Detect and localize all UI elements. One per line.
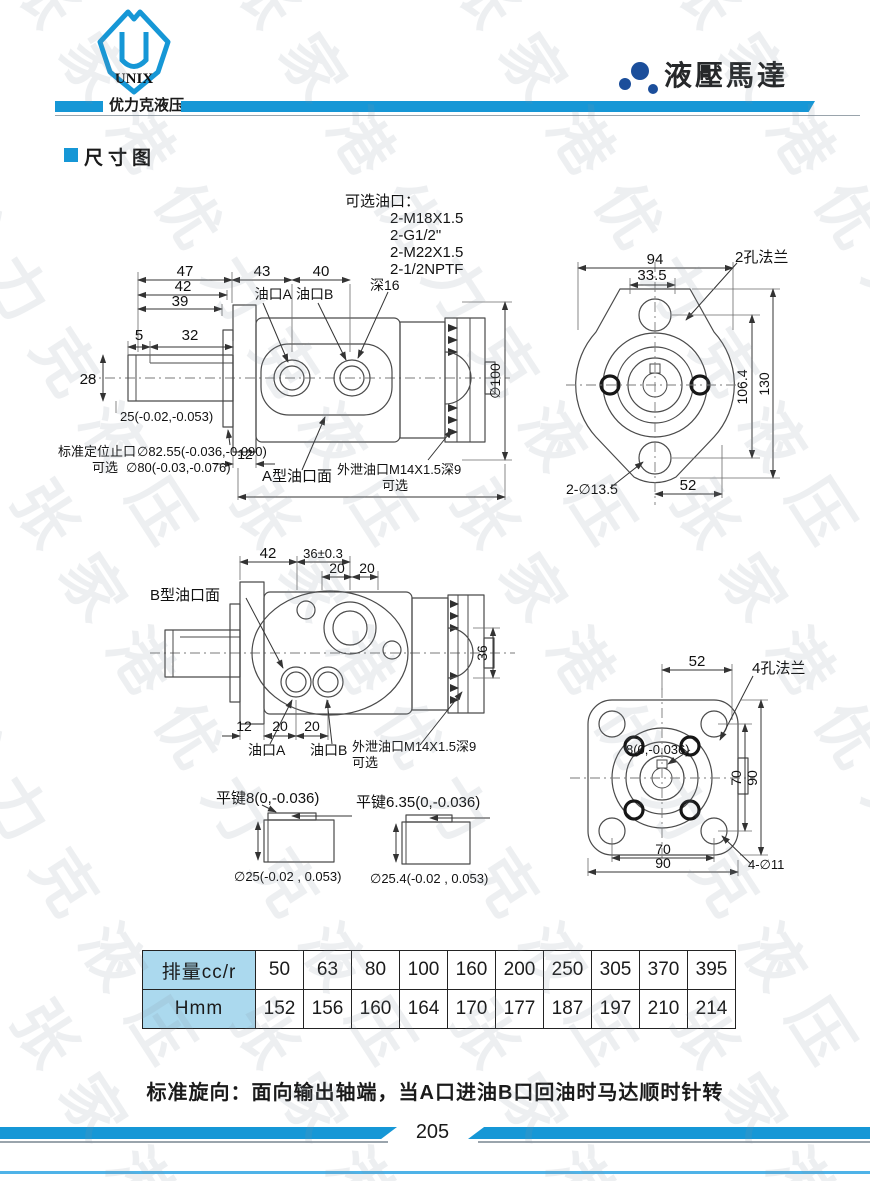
table-cell: 100 — [400, 951, 448, 990]
flange4-labels: 52 4孔法兰 8(0,-0.036) 70 90 70 90 4-∅11 — [626, 653, 805, 872]
b-face-label: B型油口面 — [150, 587, 220, 604]
table-cell: 80 — [352, 951, 400, 990]
dim-130: 130 — [756, 372, 772, 396]
drawing-flange-4hole: 52 4孔法兰 8(0,-0.036) 70 90 70 90 4-∅11 — [570, 653, 805, 876]
footer-rule-left — [0, 1141, 388, 1143]
dim-32: 32 — [182, 327, 199, 344]
port-b-label: 油口B — [310, 742, 347, 758]
rotation-note: 标准旋向：面向输出轴端，当A口进油B口回油时马达顺时针转 — [0, 1076, 870, 1105]
dim-20: 20 — [272, 718, 288, 734]
bottom-edge-line — [0, 1171, 870, 1174]
table-cell: 160 — [352, 990, 400, 1029]
table-cell: 156 — [304, 990, 352, 1029]
table-cell: 170 — [448, 990, 496, 1029]
drain-optional-label: 可选 — [352, 755, 378, 770]
port-depth-label: 深16 — [370, 277, 400, 293]
dim-2-holes: 2-∅13.5 — [566, 481, 618, 497]
dim-36-tol: 36±0.3 — [303, 546, 343, 561]
dim-33-5: 33.5 — [637, 267, 666, 284]
footer-bar-left — [0, 1127, 397, 1139]
drawing-side-view-a: 47 42 39 43 40 5 32 28 油口A 油口B 25(-0.02,… — [58, 193, 512, 500]
dim-106-4: 106.4 — [734, 369, 750, 404]
footer-bar-right — [468, 1127, 870, 1139]
flange2-title: 2孔法兰 — [735, 249, 788, 266]
table-cell: 187 — [544, 990, 592, 1029]
shaft-dia-label: 25(-0.02,-0.053) — [120, 409, 213, 424]
dim-70: 70 — [728, 770, 744, 786]
table-cell: 250 — [544, 951, 592, 990]
dim-12: 12 — [237, 446, 253, 462]
pilot-optional-label: 可选 — [92, 460, 118, 475]
table-row-displacement: 排量cc/r 50 63 80 100 160 200 250 305 370 … — [143, 951, 736, 990]
key635-shaft-dia: ∅25.4(-0.02 , 0.053) — [370, 871, 488, 886]
table-cell: 152 — [256, 990, 304, 1029]
dim-90: 90 — [655, 855, 671, 871]
table-row-height: Hmm 152 156 160 164 170 177 187 197 210 … — [143, 990, 736, 1029]
dim-52: 52 — [680, 477, 697, 494]
table-cell: 160 — [448, 951, 496, 990]
key635-label: 平键6.35(0,-0.036) — [356, 794, 480, 811]
table-cell: 164 — [400, 990, 448, 1029]
dim-42: 42 — [260, 545, 277, 562]
table-cell: 395 — [688, 951, 736, 990]
drawing-side-view-b: 42 36±0.3 20 20 B型油口面 12 20 20 油口A 油口B 外… — [150, 545, 515, 770]
dim-36: 36 — [474, 645, 490, 661]
optional-ports-title: 可选油口： — [345, 193, 420, 210]
page-number: 205 — [397, 1121, 468, 1144]
port-b-label: 油口B — [296, 286, 333, 302]
pilot-optional-dia: ∅80(-0.03,-0.076) — [126, 460, 231, 475]
dim-39: 39 — [172, 293, 189, 310]
flange2-labels: 94 33.5 2孔法兰 106.4 130 2-∅13.5 52 — [566, 249, 788, 497]
drain-port-label: 外泄油口M14X1.5深9 — [337, 462, 461, 477]
pilot-label: 标准定位止口 — [58, 444, 136, 459]
footer-rule-right — [478, 1141, 870, 1143]
port-a-label: 油口A — [248, 742, 286, 758]
table-cell: 177 — [496, 990, 544, 1029]
dim-20: 20 — [329, 560, 345, 576]
row-header-height: Hmm — [143, 990, 256, 1029]
optional-port-option: 2-M18X1.5 — [390, 210, 463, 227]
dim-dia100: ∅100 — [487, 363, 503, 399]
dim-90: 90 — [744, 770, 760, 786]
dim-4-holes: 4-∅11 — [748, 857, 784, 872]
dim-20: 20 — [359, 560, 375, 576]
dim-43: 43 — [254, 263, 271, 280]
dim-28: 28 — [80, 371, 97, 388]
drain-optional-label: 可选 — [382, 478, 408, 493]
drawing-key-8: 平键8(0,-0.036) ∅25(-0.02 , 0.053) — [216, 790, 352, 884]
table-cell: 214 — [688, 990, 736, 1029]
dim-12: 12 — [236, 718, 252, 734]
displacement-table: 排量cc/r 50 63 80 100 160 200 250 305 370 … — [142, 950, 736, 1029]
table-cell: 197 — [592, 990, 640, 1029]
dim-40: 40 — [313, 263, 330, 280]
drawing-flange-2hole: 94 33.5 2孔法兰 106.4 130 2-∅13.5 52 — [566, 249, 788, 505]
table-cell: 63 — [304, 951, 352, 990]
datasheet-page: 张家港优力克液压 张家港优力克液压 张家港优力克液压 张家港优力克液压 张家港优… — [0, 0, 870, 1181]
table-cell: 305 — [592, 951, 640, 990]
key8-shaft-dia: ∅25(-0.02 , 0.053) — [234, 869, 341, 884]
optional-port-option: 2-M22X1.5 — [390, 244, 463, 261]
keyway-dim-label: 8(0,-0.036) — [626, 742, 690, 757]
dim-94: 94 — [647, 251, 664, 268]
row-header-displacement: 排量cc/r — [143, 951, 256, 990]
key8-label: 平键8(0,-0.036) — [216, 790, 319, 807]
optional-port-option: 2-G1/2" — [390, 227, 441, 244]
table-cell: 200 — [496, 951, 544, 990]
dim-5: 5 — [135, 327, 143, 344]
a-face-label: A型油口面 — [262, 468, 332, 485]
flange4-title: 4孔法兰 — [752, 660, 805, 677]
dim-52: 52 — [689, 653, 706, 670]
optional-port-option: 2-1/2NPTF — [390, 261, 463, 278]
table-cell: 50 — [256, 951, 304, 990]
table-cell: 370 — [640, 951, 688, 990]
table-cell: 210 — [640, 990, 688, 1029]
drawing-a-labels: 47 42 39 43 40 5 32 28 油口A 油口B 25(-0.02,… — [58, 193, 503, 493]
port-a-label: 油口A — [255, 286, 293, 302]
drawing-key-6-35: 平键6.35(0,-0.036) ∅25.4(-0.02 , 0.053) — [356, 794, 490, 886]
dim-20: 20 — [304, 718, 320, 734]
drain-port-label: 外泄油口M14X1.5深9 — [352, 739, 476, 754]
